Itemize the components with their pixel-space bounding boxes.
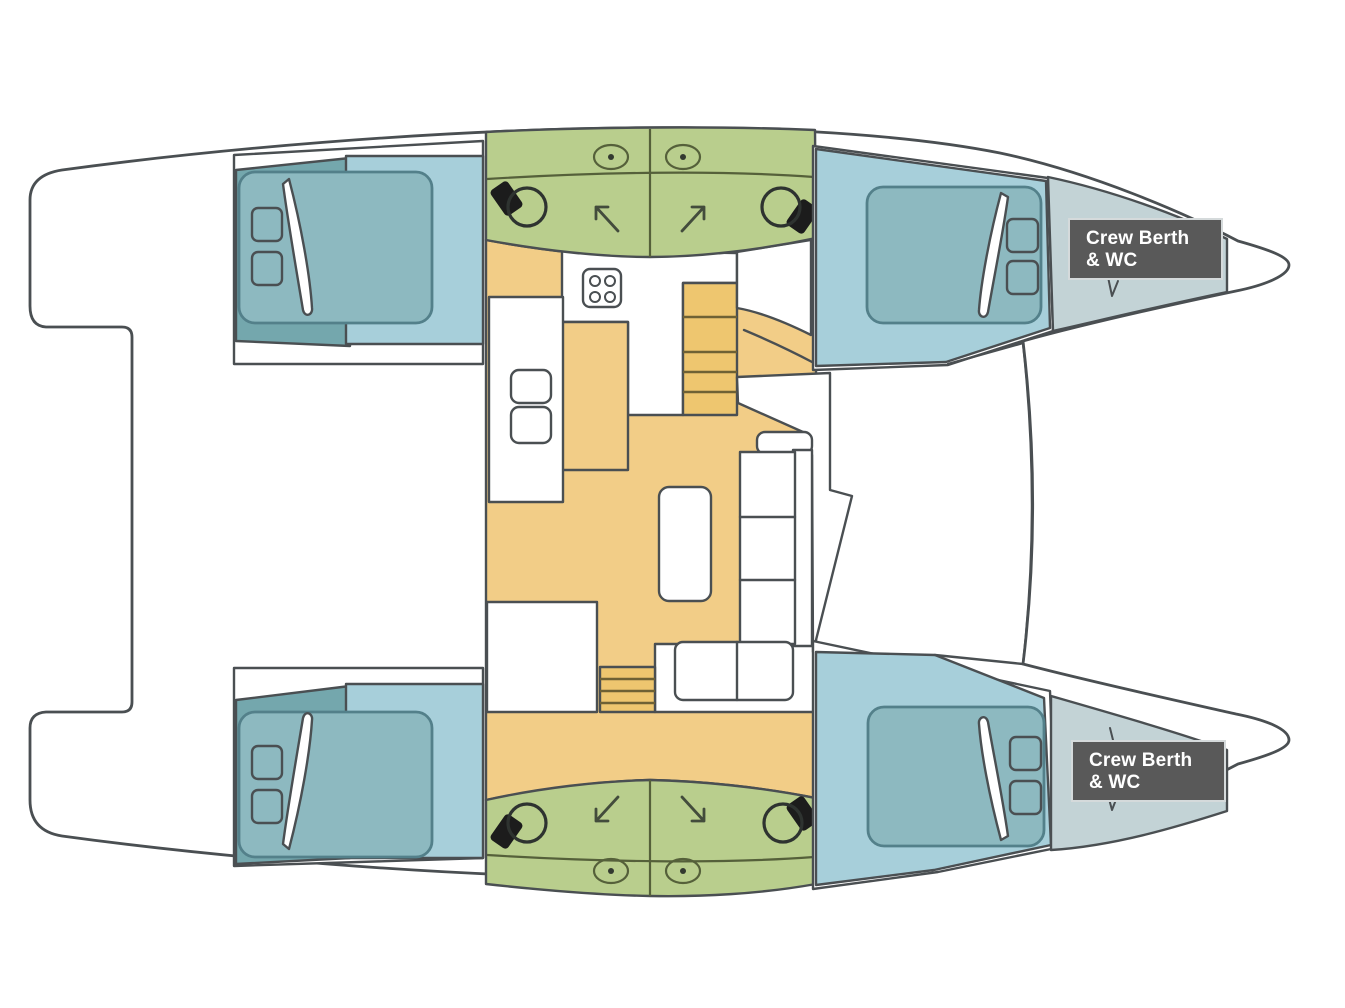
cabin-aft-starboard — [234, 668, 483, 866]
salon-area — [486, 238, 852, 800]
bed-icon — [239, 712, 432, 857]
crew-berth-label-line2: & WC — [1086, 250, 1221, 272]
cabin-fwd-port — [813, 146, 1053, 370]
crew-berth-label-line1: Crew Berth — [1086, 228, 1221, 250]
head-starboard — [486, 780, 820, 896]
bed-icon — [239, 172, 432, 323]
galley-island — [562, 322, 628, 470]
crew-berth-label-line2: & WC — [1089, 772, 1224, 794]
crew-berth-label-top: Crew Berth & WC — [1068, 218, 1223, 280]
stairs-icon-port — [683, 283, 737, 415]
galley-counter — [489, 297, 563, 502]
catamaran-floor-plan: Crew Berth & WC Crew Berth & WC — [0, 0, 1345, 1008]
table-icon — [659, 487, 711, 601]
stairs-icon-starboard — [600, 667, 655, 712]
crew-berth-label-line1: Crew Berth — [1089, 750, 1224, 772]
boat-plan-svg — [0, 0, 1345, 1008]
crew-berth-label-bottom: Crew Berth & WC — [1071, 740, 1226, 802]
cabin-aft-port — [234, 141, 483, 364]
bed-icon — [867, 187, 1041, 323]
bed-icon — [868, 707, 1044, 846]
head-port — [486, 127, 820, 257]
nav-cabinet — [487, 602, 597, 712]
